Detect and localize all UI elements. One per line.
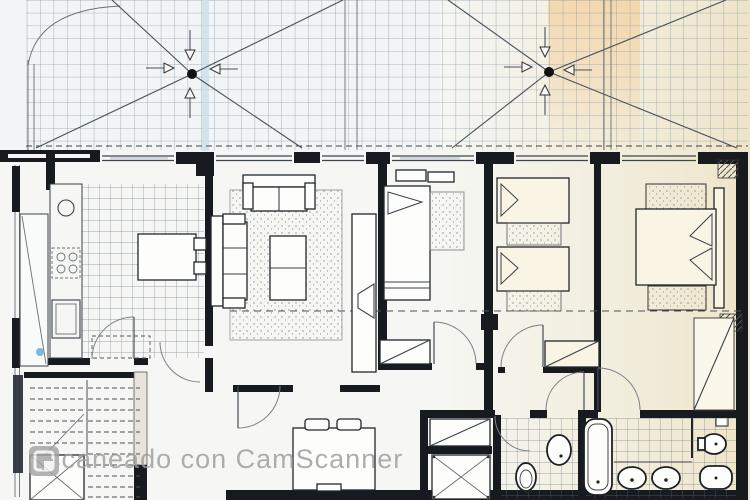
drain-icon <box>187 69 197 79</box>
single-bed <box>497 178 569 223</box>
pillar-hatch <box>718 160 738 178</box>
terrace-tile-grid <box>26 0 748 150</box>
nightstand <box>648 286 706 310</box>
single-bed <box>384 186 430 300</box>
floor-plan-drawing <box>0 0 750 500</box>
chair <box>337 419 361 430</box>
storage-closet <box>430 419 490 499</box>
shelf <box>396 170 426 181</box>
scan-crease <box>202 0 209 151</box>
tv-unit <box>352 214 376 372</box>
toilet <box>516 463 536 491</box>
nightstand <box>646 184 706 209</box>
washbasin <box>547 435 571 465</box>
blanket <box>507 223 561 245</box>
chair <box>194 262 206 274</box>
drain-icon <box>544 67 554 77</box>
sofa-two-seat <box>243 175 315 211</box>
sofa-three-seat <box>211 214 247 308</box>
chair <box>317 484 341 491</box>
scanned-floor-plan: Escaneado con CamScanner <box>0 0 750 500</box>
kitchen-counter <box>50 184 82 358</box>
watermark-text: Escaneado con CamScanner <box>28 444 403 475</box>
bedside-rug <box>430 192 464 250</box>
double-bed <box>636 209 716 285</box>
kitchen <box>50 184 206 359</box>
watermark: Escaneado con CamScanner <box>28 444 403 475</box>
chair <box>194 238 206 250</box>
kitchen-table <box>138 234 196 280</box>
duct-shaft <box>20 214 48 366</box>
blanket <box>507 291 561 311</box>
washbasin <box>652 467 680 489</box>
bathroom-1 <box>495 416 578 498</box>
chair <box>305 419 329 430</box>
shelf <box>428 172 454 182</box>
camscanner-icon <box>28 444 60 478</box>
washbasin <box>618 467 646 489</box>
roof-terrace <box>26 0 748 151</box>
single-bed <box>497 247 569 291</box>
drain-droplet-icon <box>36 348 44 356</box>
